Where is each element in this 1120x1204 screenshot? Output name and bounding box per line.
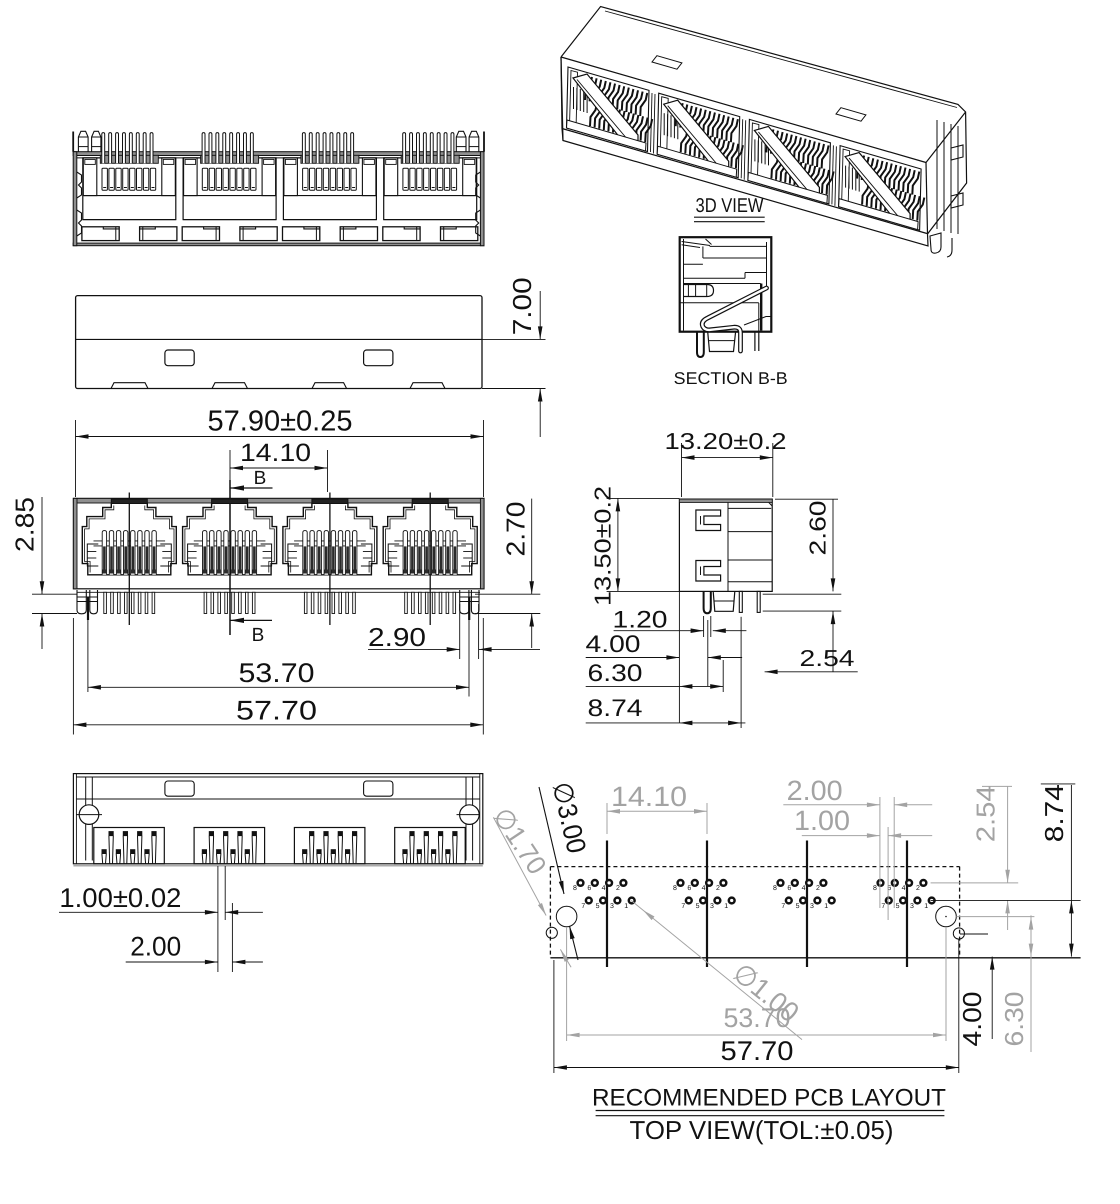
svg-text:4.00: 4.00 (586, 631, 641, 658)
svg-text:2.60: 2.60 (805, 501, 831, 556)
svg-text:13.50±0.2: 13.50±0.2 (590, 486, 616, 606)
svg-text:7: 7 (781, 903, 785, 910)
svg-text:8: 8 (873, 885, 877, 892)
svg-text:2.00: 2.00 (787, 775, 843, 806)
svg-text:1.00: 1.00 (794, 805, 850, 836)
svg-text:6: 6 (787, 885, 791, 892)
svg-text:4: 4 (802, 885, 806, 892)
svg-text:1: 1 (724, 903, 728, 910)
svg-text:5: 5 (696, 903, 700, 910)
svg-text:5: 5 (896, 903, 900, 910)
svg-text:8: 8 (673, 885, 677, 892)
svg-text:RECOMMENDED PCB LAYOUT: RECOMMENDED PCB LAYOUT (592, 1085, 946, 1112)
svg-text:SECTION B-B: SECTION B-B (674, 369, 788, 388)
svg-text:57.70: 57.70 (721, 1036, 794, 1066)
svg-text:8.74: 8.74 (588, 695, 643, 722)
svg-text:2.54: 2.54 (970, 785, 1000, 842)
svg-text:7.00: 7.00 (507, 277, 537, 335)
svg-text:1.00±0.02: 1.00±0.02 (59, 883, 181, 913)
svg-text:3D VIEW: 3D VIEW (696, 195, 764, 217)
svg-text:2.90: 2.90 (368, 622, 426, 652)
svg-text:1.20: 1.20 (613, 607, 668, 634)
svg-text:7: 7 (681, 903, 685, 910)
svg-text:2.00: 2.00 (130, 932, 181, 962)
svg-text:TOP VIEW(TOL:±0.05): TOP VIEW(TOL:±0.05) (630, 1115, 894, 1145)
svg-text:53.70: 53.70 (724, 1003, 791, 1033)
svg-text:2.54: 2.54 (800, 645, 855, 671)
svg-text:2: 2 (616, 885, 620, 892)
svg-text:53.70: 53.70 (239, 658, 315, 688)
svg-text:7: 7 (581, 903, 585, 910)
svg-text:8.74: 8.74 (1039, 784, 1069, 842)
svg-text:B: B (252, 625, 265, 646)
svg-text:4.00: 4.00 (957, 992, 987, 1047)
svg-text:1: 1 (824, 903, 828, 910)
svg-text:8: 8 (773, 885, 777, 892)
svg-text:57.90±0.25: 57.90±0.25 (208, 406, 353, 438)
svg-text:7: 7 (881, 903, 885, 910)
svg-text:2.85: 2.85 (10, 497, 40, 552)
svg-text:8: 8 (573, 885, 577, 892)
svg-text:2: 2 (816, 885, 820, 892)
svg-text:2: 2 (716, 885, 720, 892)
svg-text:6.30: 6.30 (999, 992, 1029, 1047)
svg-text:B: B (254, 468, 267, 489)
svg-text:14.10: 14.10 (611, 781, 687, 812)
svg-text:6: 6 (687, 885, 691, 892)
svg-text:5: 5 (596, 903, 600, 910)
svg-text:14.10: 14.10 (240, 439, 311, 467)
svg-text:3: 3 (810, 903, 814, 910)
svg-text:6: 6 (587, 885, 591, 892)
svg-text:4: 4 (602, 885, 606, 892)
svg-text:3: 3 (710, 903, 714, 910)
svg-text:3: 3 (910, 903, 914, 910)
svg-text:5: 5 (796, 903, 800, 910)
svg-text:4: 4 (702, 885, 706, 892)
svg-text:3: 3 (610, 903, 614, 910)
svg-text:4: 4 (902, 885, 906, 892)
svg-text:57.70: 57.70 (236, 696, 317, 726)
svg-text:13.20±0.2: 13.20±0.2 (665, 428, 787, 454)
svg-text:1: 1 (624, 903, 628, 910)
svg-text:2: 2 (916, 885, 920, 892)
svg-text:2.70: 2.70 (500, 502, 530, 557)
svg-text:6.30: 6.30 (588, 660, 643, 687)
svg-text:1: 1 (924, 903, 928, 910)
